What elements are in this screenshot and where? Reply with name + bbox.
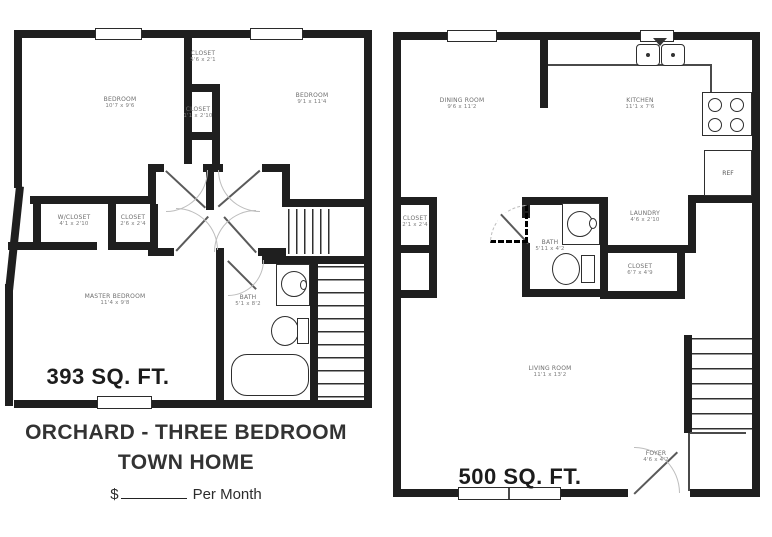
faucet (653, 38, 667, 46)
wall-segment (364, 30, 372, 408)
door-arc (228, 260, 264, 296)
room-label-closet-top: CLOSET 5'6 x 2'1 (180, 50, 226, 64)
wall-segment (684, 335, 692, 433)
window (95, 28, 142, 40)
room-label-laundry: LAUNDRY 4'6 x 2'10 (615, 210, 675, 224)
stairs (288, 209, 334, 254)
room-dims: 9'1 x 11'4 (262, 99, 362, 106)
burner (730, 98, 744, 112)
room-label-living: LIVING ROOM 11'1 x 13'2 (505, 365, 595, 379)
room-dims: 10'7 x 9'6 (70, 103, 170, 110)
room-label-dining: DINING ROOM 9'6 x 11'2 (417, 97, 507, 111)
room-name: BATH (240, 294, 257, 301)
wall-segment (148, 248, 174, 256)
room-name: LIVING ROOM (528, 365, 571, 372)
counter-edge (548, 64, 711, 66)
room-name: BEDROOM (104, 96, 137, 103)
room-dims: 1'1 x 2'10 (176, 113, 220, 120)
door-arc (490, 205, 528, 243)
plan-title-line1: ORCHARD - THREE BEDROOM (6, 422, 366, 443)
room-dims: 4'6 x 4'2 (631, 457, 681, 464)
room-name: CLOSET (186, 106, 211, 113)
sqft-label-upper: 393 SQ. FT. (28, 366, 188, 388)
room-label-closet-hall: CLOSET 2'6 x 2'4 (114, 214, 152, 228)
wall-segment (540, 40, 548, 108)
room-label-closet-under-stairs: CLOSET 6'7 x 4'9 (610, 263, 670, 277)
room-name: CLOSET (191, 50, 216, 57)
wall-segment (5, 284, 13, 406)
drain (646, 53, 650, 57)
wall-segment (14, 30, 22, 188)
foyer-edge (690, 432, 746, 434)
wall-segment (14, 30, 372, 38)
room-dims: 2'1 x 2'4 (396, 222, 434, 229)
room-label-master-bedroom: MASTER BEDROOM 11'4 x 9'8 (60, 293, 170, 307)
wall-segment (148, 164, 164, 172)
room-label-closet-mid: CLOSET 1'1 x 2'10 (176, 106, 220, 120)
room-dims: 4'1 x 2'10 (44, 221, 104, 228)
room-dims: 4'6 x 2'10 (615, 217, 675, 224)
toilet-tank (297, 318, 309, 344)
window (97, 396, 152, 409)
wall-segment (212, 92, 220, 164)
wall-segment (429, 253, 437, 290)
room-name: CLOSET (403, 215, 428, 222)
room-name: DINING ROOM (440, 97, 485, 104)
room-dims: 6'7 x 4'9 (610, 270, 670, 277)
wall-segment (522, 289, 608, 297)
wall-segment (258, 248, 286, 256)
drain (671, 53, 675, 57)
room-name: CLOSET (121, 214, 146, 221)
wall-segment (282, 199, 372, 207)
bathtub (231, 354, 309, 396)
room-dims: 2'6 x 2'4 (114, 221, 152, 228)
plan-title-line2: TOWN HOME (6, 452, 366, 473)
price-currency: $ (110, 486, 118, 503)
wall-segment (184, 84, 220, 92)
faucet (300, 280, 307, 290)
window (250, 28, 303, 40)
room-name: W/CLOSET (58, 214, 91, 221)
room-dims: 9'6 x 11'2 (417, 104, 507, 111)
wall-segment (600, 197, 608, 297)
wall-segment (600, 291, 685, 299)
room-name: KITCHEN (626, 97, 653, 104)
window-divider (508, 488, 510, 499)
room-label-kitchen: KITCHEN 11'1 x 7'6 (600, 97, 680, 111)
wall-segment (393, 489, 760, 497)
room-dims: 5'6 x 2'1 (180, 57, 226, 64)
door-arc (218, 170, 260, 212)
floor-plan-sheet: BEDROOM 10'7 x 9'6 BEDROOM 9'1 x 11'4 CL… (0, 0, 772, 537)
room-label-bath-upper: BATH 5'1 x 8'2 (226, 294, 270, 308)
room-label-bedroom-right: BEDROOM 9'1 x 11'4 (262, 92, 362, 106)
wall-segment (393, 245, 437, 253)
room-name: BEDROOM (296, 92, 329, 99)
toilet-bowl (271, 316, 299, 346)
price-suffix: Per Month (193, 486, 262, 503)
foyer-edge (688, 433, 690, 491)
room-dims: 5'1 x 8'2 (226, 301, 270, 308)
burner (708, 118, 722, 132)
wall-segment (752, 32, 760, 497)
toilet-bowl (552, 253, 580, 285)
room-dims: 11'4 x 9'8 (60, 300, 170, 307)
counter-edge (710, 64, 712, 94)
window (447, 30, 497, 42)
wall-segment (262, 256, 372, 264)
sqft-label-main: 500 SQ. FT. (440, 466, 600, 488)
burner (730, 118, 744, 132)
room-name: BATH (542, 239, 559, 246)
stairs (692, 338, 752, 433)
room-name: CLOSET (628, 263, 653, 270)
room-name: LAUNDRY (630, 210, 660, 217)
refrigerator-label: REF (704, 170, 752, 177)
room-name: MASTER BEDROOM (85, 293, 146, 300)
burner (708, 98, 722, 112)
price-line: $Per Month (6, 486, 366, 502)
wall-segment (184, 132, 212, 140)
wall-segment (688, 195, 760, 203)
door-arc (214, 210, 256, 252)
faucet (589, 218, 597, 229)
wall-segment (216, 248, 224, 400)
room-dims: 11'1 x 13'2 (505, 372, 595, 379)
room-label-bedroom-left: BEDROOM 10'7 x 9'6 (70, 96, 170, 110)
wall-segment (393, 290, 437, 298)
wall-segment (608, 245, 696, 253)
room-dims: 5'11 x 4'2 (530, 246, 570, 253)
room-label-w-closet: W/CLOSET 4'1 x 2'10 (44, 214, 104, 228)
room-label-closet-entry: CLOSET 2'1 x 2'4 (396, 215, 434, 229)
wall-segment (310, 264, 318, 400)
toilet-tank (581, 255, 595, 283)
room-label-bath-main: BATH 5'11 x 4'2 (530, 239, 570, 253)
room-name: FOYER (646, 450, 666, 457)
wall-segment (393, 32, 401, 497)
stairs (318, 266, 364, 398)
wall-segment (8, 242, 97, 250)
room-dims: 11'1 x 7'6 (600, 104, 680, 111)
wall-segment (30, 196, 156, 204)
wall-segment (393, 197, 437, 205)
wall-segment-diagonal (5, 186, 24, 290)
wall-segment (14, 400, 372, 408)
price-blank-line (121, 486, 187, 499)
room-label-foyer: FOYER 4'6 x 4'2 (631, 450, 681, 464)
door-arc (176, 208, 218, 250)
